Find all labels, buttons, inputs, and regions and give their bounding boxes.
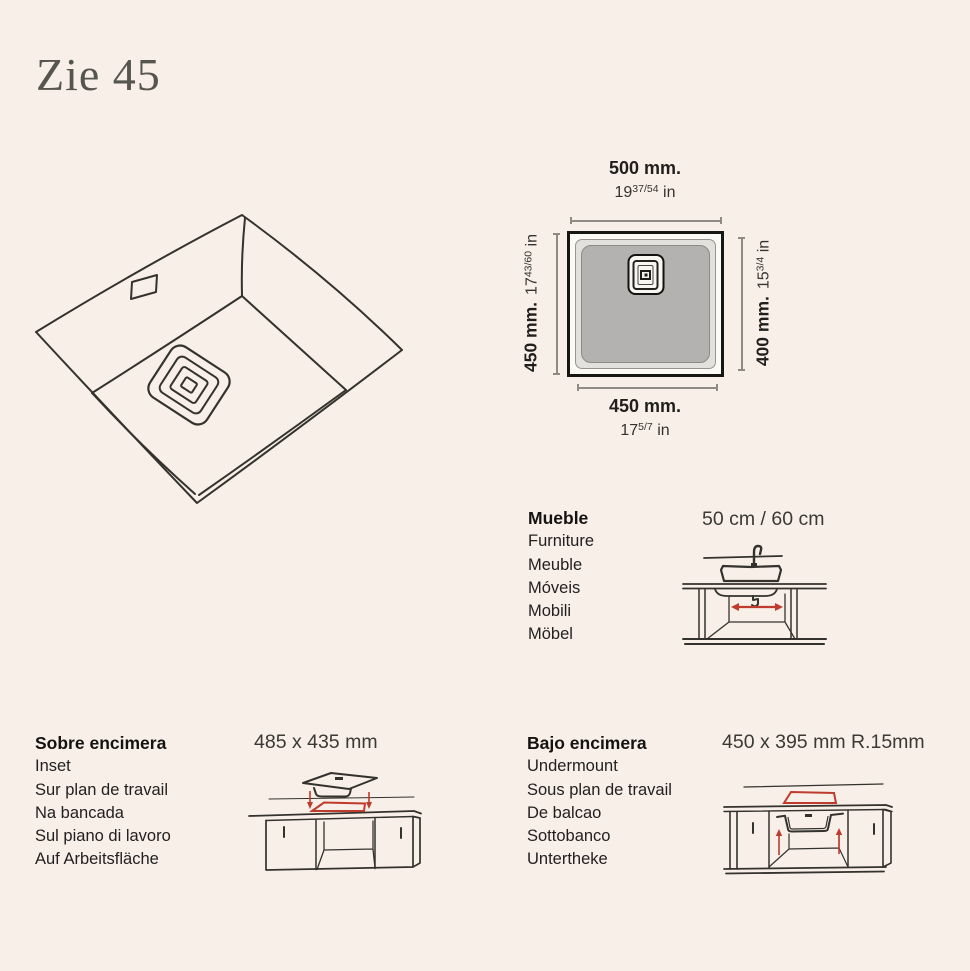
label-en: Furniture — [528, 530, 594, 553]
dimension-tick — [577, 384, 579, 391]
label-en: Undermount — [527, 755, 672, 778]
label-en: Inset — [35, 755, 171, 778]
label-fr: Meuble — [528, 554, 594, 577]
sink-perspective-sketch — [28, 183, 448, 523]
dimension-line-top — [570, 220, 722, 222]
label-fr: Sous plan de travail — [527, 779, 672, 802]
plan-bottom-dimension-label: 450 mm. 175/7 in — [560, 396, 730, 440]
label-fr: Sur plan de travail — [35, 779, 171, 802]
dimension-in: 1937/54 in — [560, 183, 730, 202]
cabinet-width-drawing — [681, 534, 829, 664]
label-pt: De balcao — [527, 802, 672, 825]
dimension-tick — [716, 384, 718, 391]
dimension-tick — [570, 217, 572, 224]
label-de: Auf Arbeitsfläche — [35, 848, 171, 871]
plan-drain — [627, 254, 664, 295]
dimension-mm: 500 mm. — [560, 158, 730, 179]
label-pt: Móveis — [528, 577, 594, 600]
undermount-section-title: Bajo encimera — [527, 732, 672, 755]
dimension-line-left — [556, 233, 558, 375]
dimension-line-right — [741, 237, 743, 371]
plan-top-dimension-label: 500 mm. 1937/54 in — [560, 158, 730, 202]
label-de: Möbel — [528, 623, 594, 646]
label-it: Mobili — [528, 600, 594, 623]
undermount-size-label: 450 x 395 mm R.15mm — [722, 731, 925, 754]
label-de: Untertheke — [527, 848, 672, 871]
inset-section-title: Sobre encimera — [35, 732, 171, 755]
cabinet-section-title: Mueble — [528, 507, 594, 530]
inset-size-label: 485 x 435 mm — [254, 731, 378, 754]
dimension-tick — [720, 217, 722, 224]
dimension-tick — [738, 369, 745, 371]
dimension-tick — [553, 233, 560, 235]
inset-installation-drawing — [247, 770, 461, 884]
cabinet-size-label: 50 cm / 60 cm — [702, 508, 824, 531]
undermount-installation-drawing — [720, 770, 942, 884]
sink-plan-diagram — [567, 231, 724, 377]
dimension-line-bottom — [577, 387, 718, 389]
plan-rim-ring — [575, 239, 716, 369]
plan-bowl — [581, 245, 710, 363]
inset-section-labels: Sobre encimera Inset Sur plan de travail… — [35, 732, 171, 872]
product-title: Zie 45 — [36, 48, 161, 101]
undermount-section-labels: Bajo encimera Undermount Sous plan de tr… — [527, 732, 672, 872]
dimension-tick — [553, 373, 560, 375]
label-it: Sul piano di lavoro — [35, 825, 171, 848]
dimension-in: 175/7 in — [560, 421, 730, 440]
label-pt: Na bancada — [35, 802, 171, 825]
dimension-mm: 450 mm. — [560, 396, 730, 417]
cabinet-section-labels: Mueble Furniture Meuble Móveis Mobili Mö… — [528, 507, 594, 647]
dimension-tick — [738, 237, 745, 239]
label-it: Sottobanco — [527, 825, 672, 848]
